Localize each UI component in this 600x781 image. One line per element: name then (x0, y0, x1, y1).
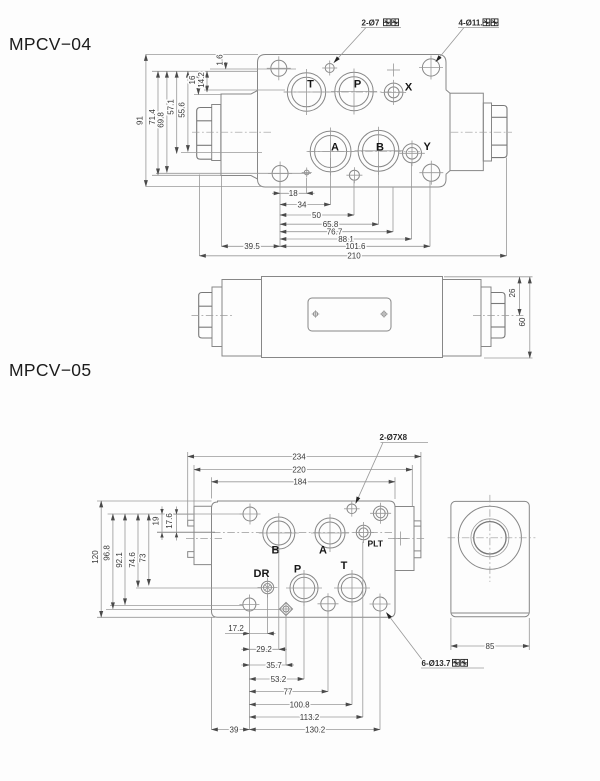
svg-text:14.2: 14.2 (197, 72, 206, 88)
svg-text:91: 91 (136, 116, 145, 125)
svg-text:113.2: 113.2 (300, 713, 320, 722)
svg-text:PLT: PLT (368, 539, 384, 549)
svg-text:73: 73 (139, 553, 148, 562)
svg-text:X: X (405, 81, 413, 93)
svg-text:2-Ø7X8: 2-Ø7X8 (380, 433, 408, 442)
svg-text:18: 18 (289, 189, 298, 198)
svg-text:35.7: 35.7 (266, 661, 282, 670)
svg-text:MPCV−05: MPCV−05 (9, 360, 91, 380)
svg-text:6-Ø13.7: 6-Ø13.7 (422, 659, 451, 668)
svg-text:19: 19 (152, 516, 161, 525)
svg-text:184: 184 (293, 478, 307, 487)
svg-text:P: P (354, 78, 361, 90)
svg-text:34: 34 (298, 200, 307, 209)
svg-text:57.1: 57.1 (167, 99, 176, 115)
svg-text:29.2: 29.2 (256, 645, 272, 654)
svg-text:P: P (294, 564, 301, 576)
svg-text:55.6: 55.6 (178, 102, 187, 118)
svg-text:130.2: 130.2 (305, 725, 326, 734)
svg-text:1.6: 1.6 (215, 54, 224, 66)
svg-text:234: 234 (292, 452, 306, 461)
svg-text:T: T (307, 79, 314, 91)
svg-text:2-Ø7: 2-Ø7 (362, 19, 380, 28)
svg-text:39.5: 39.5 (244, 242, 260, 251)
svg-text:60: 60 (518, 317, 527, 326)
svg-text:B: B (272, 545, 280, 557)
svg-text:4-Ø11.: 4-Ø11. (459, 19, 483, 28)
svg-text:96.8: 96.8 (103, 545, 112, 561)
svg-text:39: 39 (230, 725, 239, 734)
svg-text:26: 26 (508, 288, 517, 297)
svg-text:T: T (341, 560, 348, 572)
svg-text:71.4: 71.4 (148, 109, 157, 125)
svg-text:A: A (319, 545, 327, 557)
svg-text:100.8: 100.8 (290, 700, 311, 709)
svg-text:101.6: 101.6 (345, 242, 366, 251)
svg-text:74.6: 74.6 (128, 552, 137, 568)
svg-text:DR: DR (254, 568, 270, 580)
svg-text:Y: Y (424, 141, 432, 153)
svg-text:85: 85 (486, 642, 495, 651)
svg-text:MPCV−04: MPCV−04 (9, 34, 91, 54)
svg-text:120: 120 (91, 550, 100, 564)
svg-text:17.6: 17.6 (165, 513, 174, 529)
svg-text:B: B (376, 142, 384, 154)
svg-text:69.8: 69.8 (157, 112, 166, 128)
svg-text:220: 220 (292, 466, 306, 475)
svg-text:210: 210 (347, 252, 361, 261)
svg-text:92.1: 92.1 (115, 552, 124, 568)
svg-text:A: A (331, 142, 339, 154)
svg-text:77: 77 (284, 687, 293, 696)
svg-text:17.2: 17.2 (228, 624, 244, 633)
svg-text:50: 50 (312, 211, 321, 220)
svg-text:53.2: 53.2 (271, 675, 287, 684)
